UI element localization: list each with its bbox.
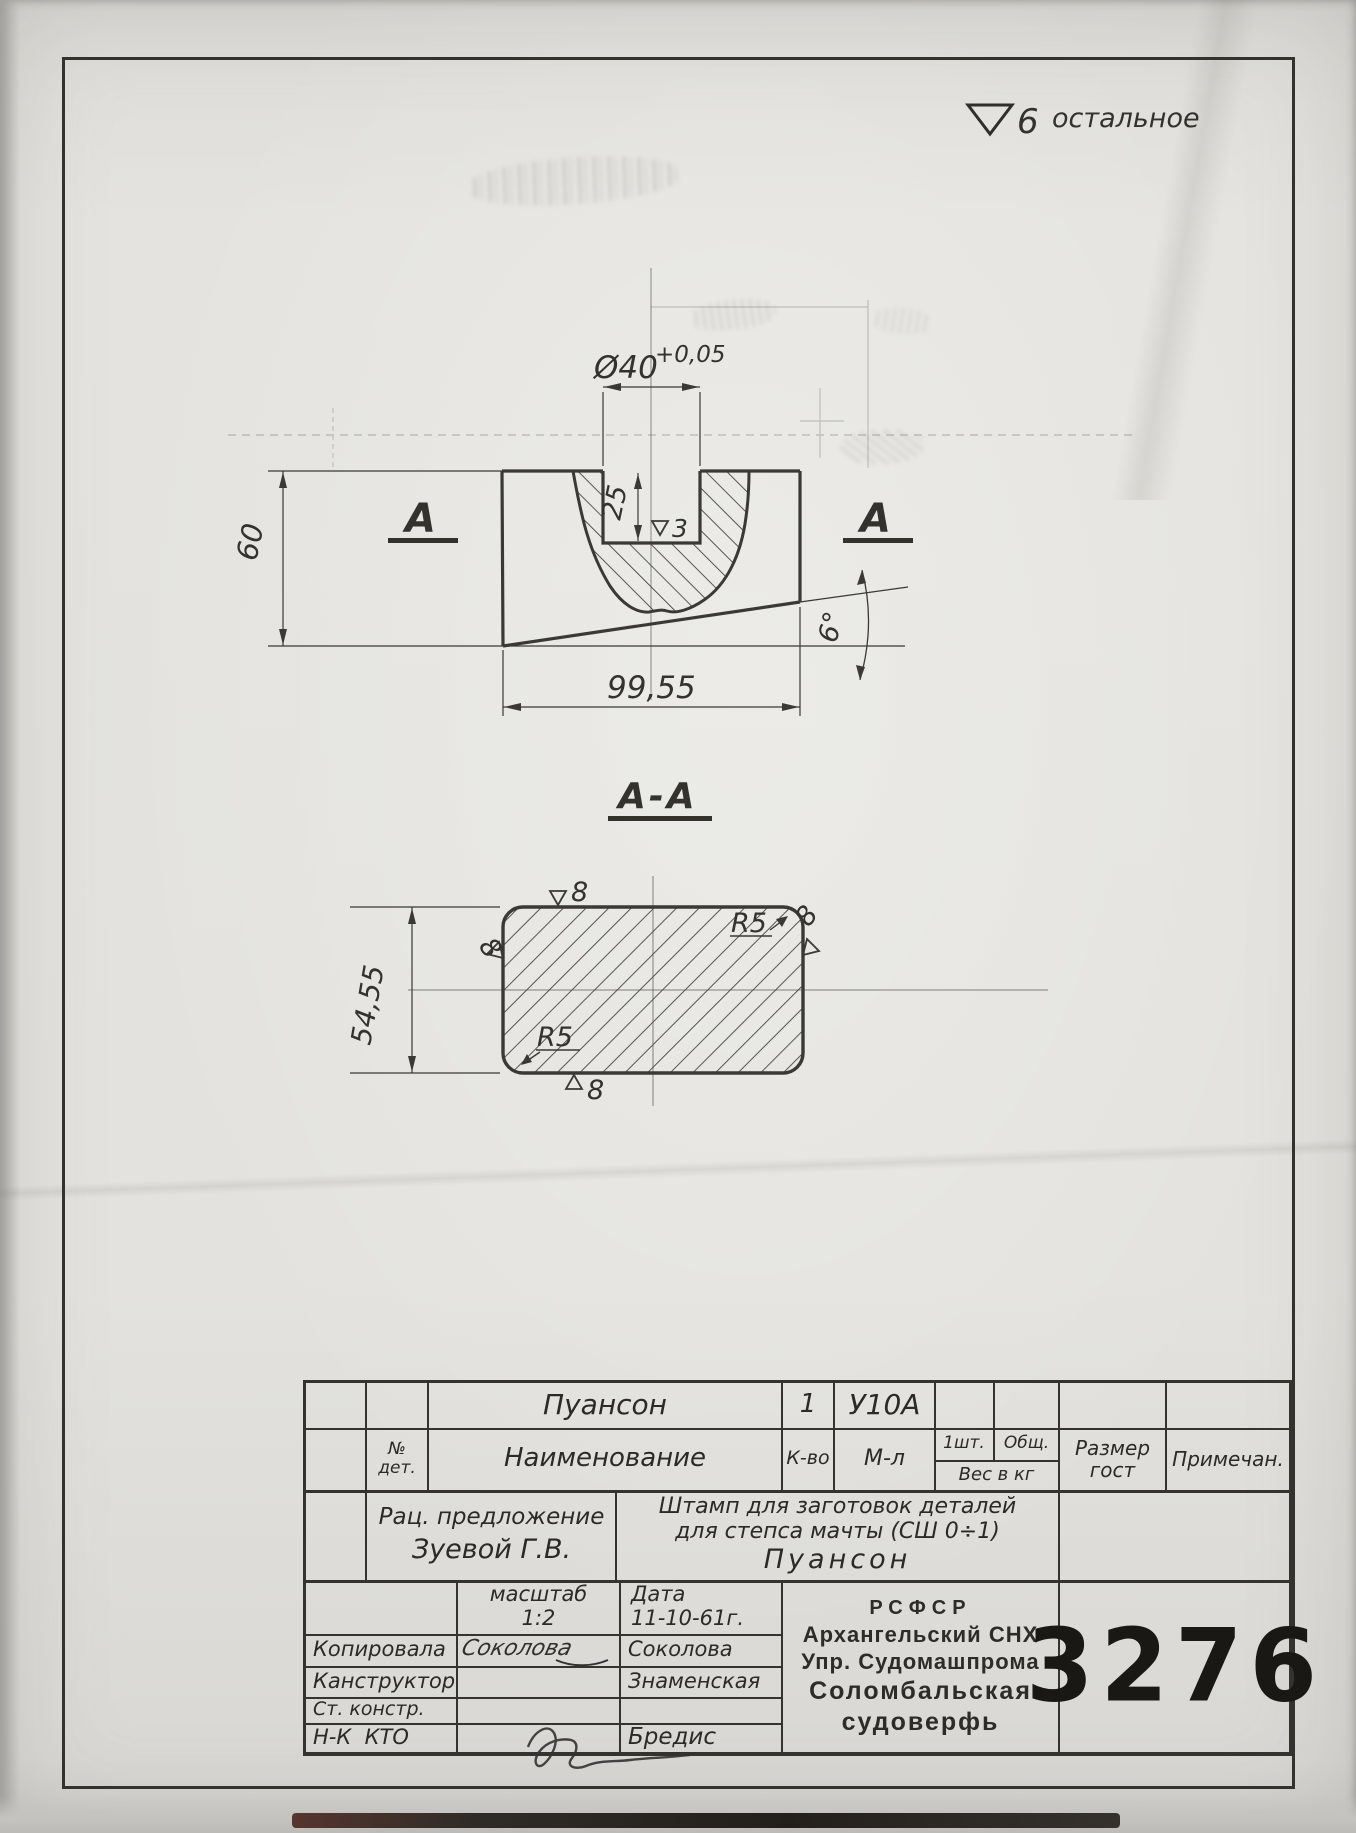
title-line2: для степса мачты (СШ 0÷1) (675, 1520, 1000, 1545)
header-qty: К-во (782, 1430, 834, 1488)
org-line4: Соломбальская (809, 1676, 1032, 1707)
cell-organization: РСФСР Архангельский СНХ Упр. Судомашпром… (783, 1586, 1058, 1748)
header-total: Общ. (995, 1428, 1058, 1460)
org-line5: судоверфь (842, 1707, 1000, 1738)
cell-scale: масштаб 1:2 (458, 1582, 619, 1632)
org-line1: РСФСР (869, 1596, 971, 1621)
org-line2: Архангельский СНХ (803, 1621, 1039, 1649)
scanned-drawing-sheet: 6 остальное (0, 0, 1356, 1833)
row-label-st-konstr: Ст. констр. (306, 1697, 463, 1723)
drawing-number: 3276 (1060, 1577, 1290, 1756)
scale-value: 1:2 (522, 1607, 556, 1631)
proposal-line1: Рац. предложение (379, 1505, 605, 1531)
proposal-line2: Зуевой Г.В. (412, 1535, 571, 1565)
header-det-no-line1: № (388, 1440, 406, 1459)
cell-proposal: Рац. предложение Зуевой Г.В. (368, 1493, 615, 1577)
row-label-kopirovala: Копировала (306, 1634, 463, 1666)
header-material: М-л (834, 1430, 935, 1488)
row-label-nk-kto: Н-К КТО (306, 1723, 463, 1752)
header-per-piece: 1шт. (935, 1428, 993, 1460)
scale-label: масштаб (490, 1583, 588, 1607)
cell-part-name: Пуансон (428, 1382, 782, 1428)
date-value: 11-10-61г. (631, 1607, 744, 1631)
cell-part-material: У10А (834, 1382, 935, 1428)
cell-part-qty: 1 (782, 1382, 834, 1428)
date-label: Дата (631, 1583, 685, 1607)
title-line3: Пуансон (764, 1545, 912, 1575)
cell-drawing-title: Штамп для заготовок деталей для степса м… (617, 1492, 1058, 1578)
org-line3: Упр. Судомашпрома (801, 1648, 1039, 1676)
signature-kopirovala: Соколова (458, 1634, 620, 1664)
row-label-konstruktor: Канструктор (306, 1666, 463, 1697)
name-konstruktor: Знаменская (621, 1666, 788, 1697)
title-line1: Штамп для заготовок деталей (659, 1495, 1016, 1520)
header-size-line1: Размер (1075, 1437, 1150, 1459)
cell-date: Дата 11-10-61г. (621, 1582, 791, 1632)
name-kopirovala: Соколова (621, 1634, 788, 1666)
header-note: Примечан. (1167, 1430, 1289, 1488)
header-name: Наименование (428, 1430, 782, 1488)
title-block: Пуансон 1 У10А № дет. Наименование К-во … (0, 0, 1356, 1833)
header-weight: Вес в кг (935, 1461, 1058, 1489)
header-size-line2: гост (1090, 1459, 1135, 1481)
name-nk-kto: Бредис (621, 1723, 788, 1752)
header-det-no-line2: дет. (378, 1459, 416, 1478)
header-det-no: № дет. (366, 1430, 428, 1488)
header-size-gost: Размер гост (1060, 1430, 1165, 1488)
